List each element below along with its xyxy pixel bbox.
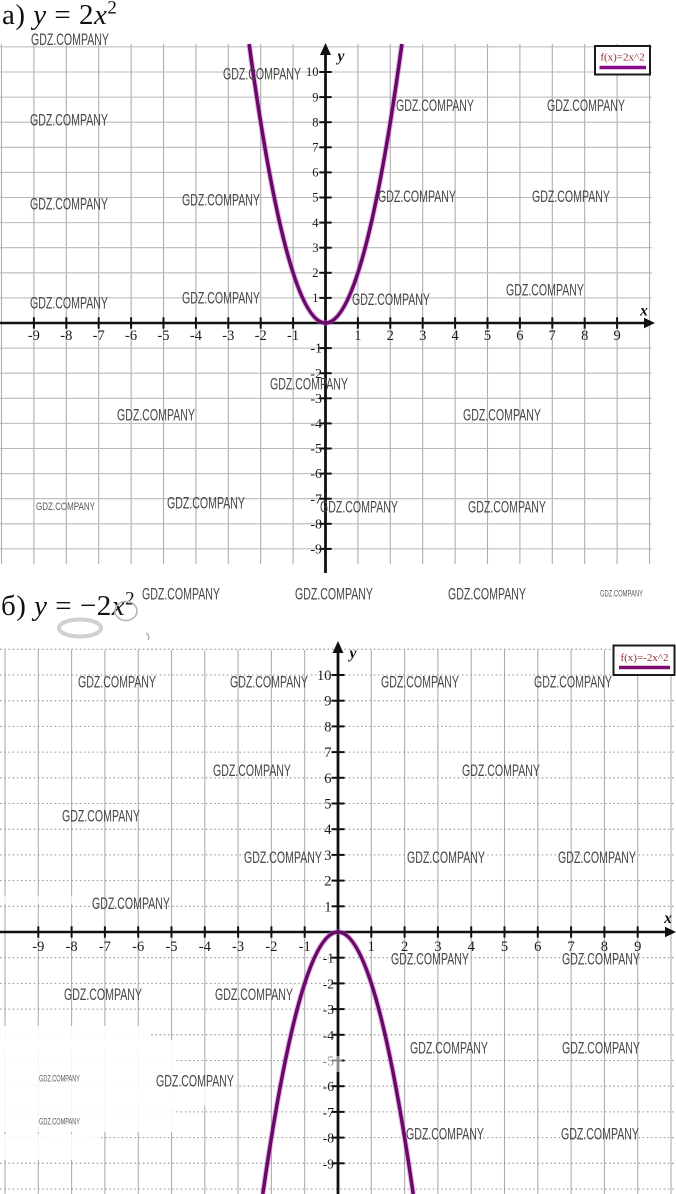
svg-text:-1: -1 xyxy=(310,342,322,357)
svg-text:-1: -1 xyxy=(323,951,334,966)
svg-text:y: y xyxy=(336,48,345,65)
svg-text:GDZ.COMPANY: GDZ.COMPANY xyxy=(39,1117,80,1127)
svg-text:GDZ.COMPANY: GDZ.COMPANY xyxy=(223,66,301,84)
svg-text:-8: -8 xyxy=(60,328,72,344)
svg-text:GDZ.COMPANY: GDZ.COMPANY xyxy=(406,1126,484,1144)
svg-text:GDZ.COMPANY: GDZ.COMPANY xyxy=(92,895,170,913)
svg-text:-7: -7 xyxy=(99,939,111,955)
svg-text:x: x xyxy=(663,910,672,927)
svg-text:6: 6 xyxy=(516,328,523,344)
svg-text:GDZ.COMPANY: GDZ.COMPANY xyxy=(64,986,142,1004)
svg-text:-2: -2 xyxy=(255,328,267,344)
svg-text:GDZ.COMPANY: GDZ.COMPANY xyxy=(462,762,540,780)
svg-text:GDZ.COMPANY: GDZ.COMPANY xyxy=(352,291,430,309)
svg-text:2: 2 xyxy=(312,266,318,280)
svg-text:-9: -9 xyxy=(323,1156,334,1171)
svg-text:GDZ.COMPANY: GDZ.COMPANY xyxy=(215,986,293,1004)
svg-text:GDZ.COMPANY: GDZ.COMPANY xyxy=(36,501,95,513)
svg-text:-3: -3 xyxy=(232,939,244,955)
svg-text:-7: -7 xyxy=(93,328,105,344)
svg-text:7: 7 xyxy=(549,328,556,344)
svg-text:GDZ.COMPANY: GDZ.COMPANY xyxy=(506,282,584,300)
svg-text:3: 3 xyxy=(324,848,331,864)
svg-text:GDZ.COMPANY: GDZ.COMPANY xyxy=(30,112,108,130)
svg-text:GDZ.COMPANY: GDZ.COMPANY xyxy=(156,1073,234,1091)
svg-text:5: 5 xyxy=(324,797,331,813)
svg-text:5: 5 xyxy=(501,939,508,955)
svg-text:GDZ.COMPANY: GDZ.COMPANY xyxy=(561,1126,639,1144)
svg-text:-9: -9 xyxy=(310,543,322,558)
svg-text:2: 2 xyxy=(324,874,331,890)
svg-text:-8: -8 xyxy=(323,1131,334,1146)
svg-text:6: 6 xyxy=(324,771,331,787)
svg-text:GDZ.COMPANY: GDZ.COMPANY xyxy=(213,762,291,780)
svg-text:1: 1 xyxy=(354,328,361,344)
svg-text:5: 5 xyxy=(484,328,491,344)
svg-text:f(x)=-2x^2: f(x)=-2x^2 xyxy=(620,652,668,664)
svg-text:-6: -6 xyxy=(310,467,322,482)
svg-text:GDZ.COMPANY: GDZ.COMPANY xyxy=(600,589,643,599)
svg-text:-3: -3 xyxy=(323,1002,334,1017)
svg-text:GDZ.COMPANY: GDZ.COMPANY xyxy=(167,495,245,513)
svg-text:9: 9 xyxy=(312,90,318,104)
svg-text:GDZ.COMPANY: GDZ.COMPANY xyxy=(182,192,260,210)
svg-text:4: 4 xyxy=(451,328,459,344)
svg-text:GDZ.COMPANY: GDZ.COMPANY xyxy=(532,188,610,206)
svg-text:1: 1 xyxy=(368,939,375,955)
svg-text:-1: -1 xyxy=(287,328,299,344)
svg-text:-2: -2 xyxy=(323,976,334,991)
svg-text:4: 4 xyxy=(324,822,332,838)
svg-text:GDZ.COMPANY: GDZ.COMPANY xyxy=(534,674,612,692)
svg-text:GDZ.COMPANY: GDZ.COMPANY xyxy=(320,499,398,517)
svg-text:8: 8 xyxy=(312,115,318,129)
svg-text:-9: -9 xyxy=(32,939,44,955)
svg-text:-4: -4 xyxy=(190,328,203,344)
svg-text:-3: -3 xyxy=(310,392,322,407)
svg-text:-7: -7 xyxy=(323,1105,334,1120)
svg-text:GDZ.COMPANY: GDZ.COMPANY xyxy=(463,407,541,425)
svg-text:GDZ.COMPANY: GDZ.COMPANY xyxy=(39,1074,80,1084)
svg-text:GDZ.COMPANY: GDZ.COMPANY xyxy=(396,97,474,115)
svg-text:4: 4 xyxy=(312,216,319,230)
svg-text:GDZ.COMPANY: GDZ.COMPANY xyxy=(407,849,485,867)
svg-text:x: x xyxy=(639,303,648,320)
svg-text:-5: -5 xyxy=(165,939,177,955)
svg-text:3: 3 xyxy=(419,328,426,344)
svg-text:-1: -1 xyxy=(299,939,311,955)
svg-text:GDZ.COMPANY: GDZ.COMPANY xyxy=(547,97,625,115)
svg-text:GDZ.COMPANY: GDZ.COMPANY xyxy=(448,586,526,604)
svg-text:f(x)=2x^2: f(x)=2x^2 xyxy=(600,52,644,64)
svg-text:GDZ.COMPANY: GDZ.COMPANY xyxy=(30,196,108,214)
svg-text:GDZ.COMPANY: GDZ.COMPANY xyxy=(391,951,469,969)
svg-text:-5: -5 xyxy=(157,328,169,344)
svg-text:GDZ.COMPANY: GDZ.COMPANY xyxy=(381,674,459,692)
svg-text:-8: -8 xyxy=(310,517,322,532)
svg-text:10: 10 xyxy=(317,668,332,684)
svg-text:GDZ.COMPANY: GDZ.COMPANY xyxy=(270,376,348,394)
svg-text:-4: -4 xyxy=(199,939,212,955)
svg-text:GDZ.COMPANY: GDZ.COMPANY xyxy=(182,290,260,308)
svg-text:1: 1 xyxy=(324,899,331,915)
svg-text:9: 9 xyxy=(324,694,331,710)
svg-text:-3: -3 xyxy=(222,328,234,344)
svg-text:-6: -6 xyxy=(125,328,137,344)
svg-text:6: 6 xyxy=(534,939,541,955)
svg-text:10: 10 xyxy=(306,65,319,79)
svg-text:2: 2 xyxy=(387,328,394,344)
svg-text:GDZ.COMPANY: GDZ.COMPANY xyxy=(562,951,640,969)
svg-text:7: 7 xyxy=(312,141,318,155)
svg-text:GDZ.COMPANY: GDZ.COMPANY xyxy=(468,499,546,517)
svg-text:GDZ.COMPANY: GDZ.COMPANY xyxy=(410,1040,488,1058)
svg-text:GDZ.COMPANY: GDZ.COMPANY xyxy=(31,31,109,49)
svg-text:GDZ.COMPANY: GDZ.COMPANY xyxy=(78,674,156,692)
svg-text:6: 6 xyxy=(312,166,318,180)
svg-text:-6: -6 xyxy=(132,939,144,955)
svg-text:-2: -2 xyxy=(265,939,277,955)
svg-text:GDZ.COMPANY: GDZ.COMPANY xyxy=(142,586,220,604)
svg-text:GDZ.COMPANY: GDZ.COMPANY xyxy=(30,295,108,313)
svg-text:-5: -5 xyxy=(310,442,322,457)
svg-text:y: y xyxy=(348,645,357,662)
svg-text:5: 5 xyxy=(312,191,318,205)
svg-text:9: 9 xyxy=(613,328,620,344)
svg-text:-9: -9 xyxy=(28,328,40,344)
svg-text:GDZ.COMPANY: GDZ.COMPANY xyxy=(378,188,456,206)
svg-text:GDZ.COMPANY: GDZ.COMPANY xyxy=(117,407,195,425)
svg-text:1: 1 xyxy=(312,291,318,305)
svg-text:GDZ.COMPANY: GDZ.COMPANY xyxy=(562,1040,640,1058)
svg-text:GDZ.COMPANY: GDZ.COMPANY xyxy=(558,849,636,867)
svg-text:GDZ.COMPANY: GDZ.COMPANY xyxy=(295,586,373,604)
svg-text:GDZ.COMPANY: GDZ.COMPANY xyxy=(244,849,322,867)
svg-text:8: 8 xyxy=(324,719,331,735)
svg-text:GDZ.COMPANY: GDZ.COMPANY xyxy=(62,808,140,826)
svg-text:7: 7 xyxy=(324,745,331,761)
svg-text:GDZ.COMPANY: GDZ.COMPANY xyxy=(230,674,308,692)
svg-text:-4: -4 xyxy=(310,417,322,432)
svg-text:-6: -6 xyxy=(323,1079,334,1094)
svg-text:8: 8 xyxy=(581,328,588,344)
svg-text:-4: -4 xyxy=(323,1028,334,1043)
svg-text:-8: -8 xyxy=(66,939,78,955)
svg-text:3: 3 xyxy=(312,241,318,255)
